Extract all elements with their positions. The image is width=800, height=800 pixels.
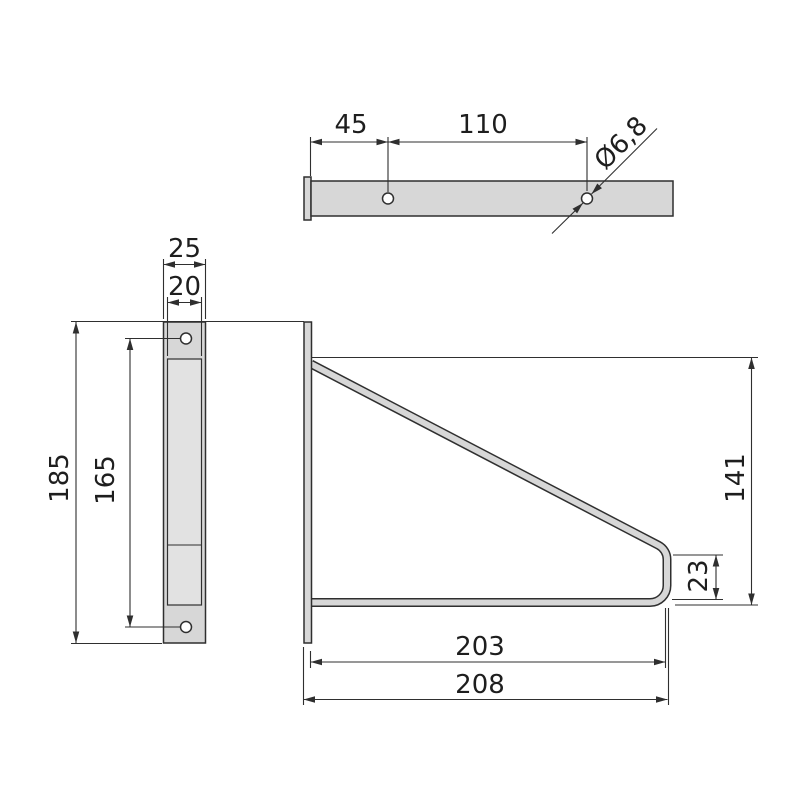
wall-plate-edge [304,177,311,220]
screw-hole-top [181,333,192,344]
wall-plate-front [304,322,312,643]
dim-label-45: 45 [334,110,367,140]
dim-label-141: 141 [721,453,751,503]
mounting-hole-rear [582,193,593,204]
dim-label-110: 110 [458,110,508,140]
screw-hole-bottom [181,622,192,633]
plate-recess [168,359,202,605]
dim-label-23: 23 [684,559,714,592]
dim-label-165: 165 [91,455,121,505]
drawing-canvas: 45 110 Ø6,8 25 20 185 165 [0,0,800,800]
mounting-hole-front [383,193,394,204]
dim-label-185: 185 [45,453,75,503]
bracket-strip [311,364,667,603]
dim-label-203: 203 [455,632,505,662]
dim-label-hole-diameter: Ø6,8 [589,111,654,176]
dim-label-208: 208 [455,670,505,700]
dim-label-25: 25 [168,234,201,264]
support-bar [311,181,673,216]
front-view: 141 23 203 208 [304,322,759,705]
dim-label-20: 20 [168,272,201,302]
bracket-technical-drawing: 45 110 Ø6,8 25 20 185 165 [0,0,800,800]
side-view: 25 20 185 165 [45,234,304,644]
top-view: 45 110 Ø6,8 [304,110,673,234]
bracket-strip-outline [311,364,667,603]
